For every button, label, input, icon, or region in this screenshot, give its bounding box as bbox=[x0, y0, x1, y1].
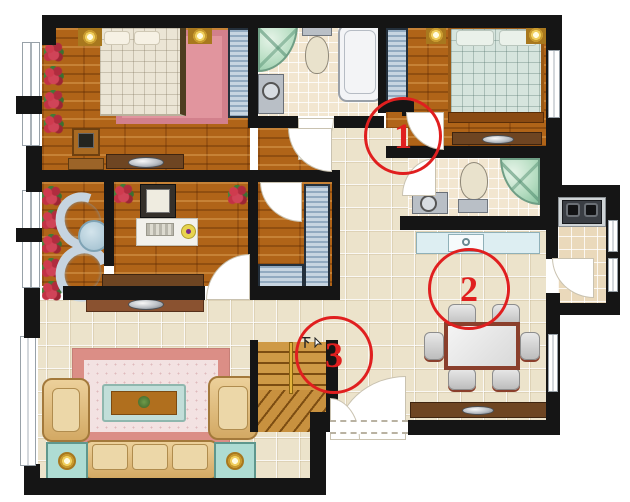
wall bbox=[26, 146, 42, 192]
wall bbox=[104, 182, 114, 266]
window bbox=[608, 258, 618, 292]
marker-2[interactable]: 2 bbox=[428, 248, 510, 330]
potted-plant bbox=[228, 185, 248, 207]
sofa-cushion bbox=[172, 444, 208, 470]
tv bbox=[128, 299, 164, 310]
toilet bbox=[460, 162, 488, 200]
table-lamp bbox=[226, 452, 244, 470]
wardrobe bbox=[304, 184, 330, 292]
potted-plant bbox=[44, 66, 64, 88]
wall bbox=[42, 15, 555, 28]
nightstand-lamp bbox=[188, 28, 212, 44]
table-plant bbox=[138, 396, 150, 408]
wall bbox=[42, 170, 254, 182]
bed-footboard bbox=[448, 112, 544, 123]
window bbox=[20, 336, 36, 466]
marker-2-label: 2 bbox=[460, 268, 478, 310]
window bbox=[548, 334, 558, 392]
wall bbox=[248, 15, 258, 128]
stove-burner bbox=[584, 203, 598, 217]
wall bbox=[42, 15, 56, 45]
wall bbox=[400, 216, 550, 230]
marker-3-label: 3 bbox=[325, 334, 343, 376]
wall bbox=[332, 182, 340, 286]
armchair-cushion bbox=[218, 386, 248, 430]
nightstand-lamp bbox=[526, 26, 546, 44]
wall bbox=[63, 286, 205, 300]
nightstand-lamp bbox=[78, 28, 102, 46]
potted-plant bbox=[44, 90, 64, 112]
keyboard bbox=[146, 223, 174, 236]
wall bbox=[16, 228, 42, 242]
counter-faucet bbox=[462, 238, 470, 246]
dresser-bowl bbox=[482, 135, 514, 144]
entry-threshold bbox=[330, 420, 408, 434]
wall bbox=[24, 288, 40, 338]
window bbox=[608, 220, 618, 252]
pillow bbox=[104, 31, 130, 45]
dining-chair bbox=[424, 332, 444, 360]
tv-screen bbox=[78, 133, 94, 148]
wall bbox=[250, 340, 258, 432]
sideboard-bowl bbox=[462, 406, 494, 415]
dining-chair bbox=[448, 368, 476, 390]
wall bbox=[250, 286, 340, 300]
wall bbox=[540, 152, 556, 218]
pillow bbox=[456, 30, 494, 46]
bay-window bbox=[22, 42, 40, 146]
wall bbox=[408, 420, 554, 435]
dining-chair bbox=[492, 368, 520, 390]
armchair-cushion bbox=[52, 388, 80, 432]
marker-1-label: 1 bbox=[394, 115, 412, 157]
potted-plant bbox=[44, 42, 64, 64]
dining-chair bbox=[520, 332, 540, 360]
wall bbox=[378, 15, 386, 113]
table-lamp bbox=[58, 452, 76, 470]
floor-plan: 下 1 bbox=[0, 0, 630, 502]
wardrobe bbox=[386, 28, 408, 106]
wall bbox=[250, 116, 298, 128]
toilet bbox=[305, 36, 329, 74]
marker-1[interactable]: 1 bbox=[364, 97, 442, 175]
wall bbox=[24, 464, 40, 484]
nightstand-lamp bbox=[426, 26, 446, 44]
stair-rail bbox=[289, 342, 293, 394]
window bbox=[548, 50, 560, 118]
toilet-tank bbox=[458, 199, 488, 213]
wall bbox=[16, 96, 42, 114]
wash-basin bbox=[420, 195, 437, 212]
stove-burner bbox=[566, 203, 580, 217]
sofa-cushion bbox=[132, 444, 168, 470]
marker-3[interactable]: 3 bbox=[295, 316, 373, 394]
potted-plant bbox=[114, 184, 134, 206]
wall bbox=[24, 478, 326, 495]
bench bbox=[68, 158, 104, 170]
sofa-cushion bbox=[92, 444, 128, 470]
dresser-bowl bbox=[128, 157, 164, 168]
pillow bbox=[134, 31, 160, 45]
monitor-screen bbox=[146, 189, 170, 213]
potted-plant bbox=[44, 114, 64, 136]
mouse bbox=[186, 229, 191, 234]
dining-table bbox=[444, 322, 520, 370]
potted-plant bbox=[42, 234, 62, 256]
wash-basin bbox=[262, 82, 280, 100]
bathtub-inner bbox=[344, 30, 376, 94]
